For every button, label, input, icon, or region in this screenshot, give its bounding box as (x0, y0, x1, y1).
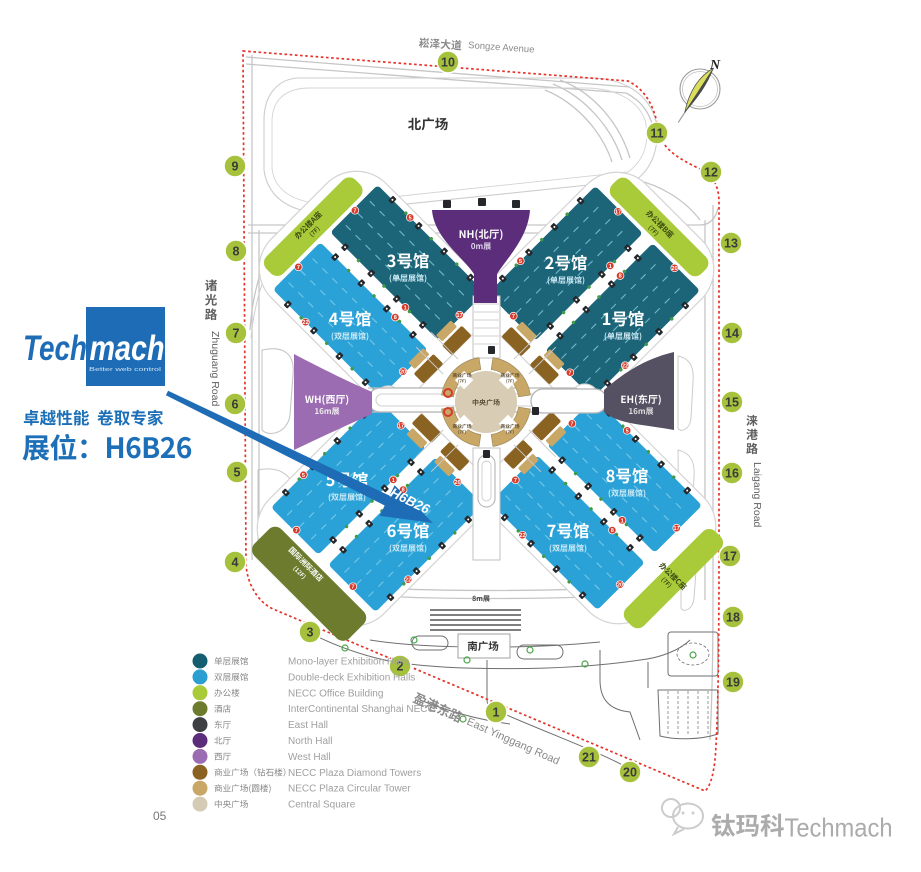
svg-text:1: 1 (392, 478, 395, 484)
svg-text:15: 15 (725, 395, 739, 409)
svg-text:8: 8 (233, 244, 240, 258)
svg-text:5: 5 (409, 215, 412, 221)
svg-text:20: 20 (672, 266, 678, 272)
svg-text:7: 7 (297, 265, 300, 271)
svg-text:20: 20 (400, 370, 406, 376)
svg-text:West Hall: West Hall (288, 752, 331, 763)
svg-text:10: 10 (441, 55, 455, 69)
svg-text:13: 13 (724, 236, 738, 250)
svg-text:Mono-layer Exhibition Halls: Mono-layer Exhibition Halls (288, 657, 409, 668)
svg-text:22: 22 (405, 578, 411, 584)
svg-text:7: 7 (295, 528, 298, 534)
svg-text:7: 7 (233, 326, 240, 340)
svg-text:18: 18 (726, 610, 740, 624)
svg-text:NECC Plaza Circular Tower: NECC Plaza Circular Tower (288, 784, 411, 795)
svg-text:8: 8 (611, 528, 614, 534)
svg-text:North Hall: North Hall (288, 736, 332, 747)
svg-text:N: N (709, 58, 721, 73)
svg-text:8: 8 (394, 315, 397, 321)
svg-text:7: 7 (353, 208, 356, 214)
svg-text:11: 11 (650, 126, 663, 140)
svg-text:20: 20 (455, 480, 461, 486)
svg-text:7: 7 (514, 478, 517, 484)
svg-text:1: 1 (404, 305, 407, 311)
svg-text:Double-deck Exhibition Halls: Double-deck Exhibition Halls (288, 672, 415, 683)
svg-text:1: 1 (609, 264, 612, 270)
svg-text:Tech: Tech (23, 329, 87, 368)
svg-text:Zhuguang Road: Zhuguang Road (209, 331, 221, 406)
svg-text:19: 19 (726, 675, 740, 689)
svg-text:7: 7 (570, 421, 573, 427)
svg-text:22: 22 (622, 364, 628, 370)
svg-text:4: 4 (232, 555, 239, 569)
svg-text:17: 17 (723, 549, 737, 563)
svg-text:East Hall: East Hall (288, 720, 328, 731)
svg-text:5: 5 (302, 473, 305, 479)
svg-text:20: 20 (623, 765, 637, 779)
svg-text:Better web control: Better web control (89, 367, 161, 373)
svg-text:9: 9 (232, 159, 239, 173)
svg-text:14: 14 (725, 326, 739, 340)
svg-text:7: 7 (512, 314, 515, 320)
svg-text:NECC Plaza Diamond Towers: NECC Plaza Diamond Towers (288, 768, 421, 779)
svg-text:5: 5 (626, 428, 629, 434)
svg-text:17: 17 (674, 526, 680, 532)
svg-text:20: 20 (617, 583, 623, 589)
svg-text:16: 16 (725, 466, 739, 480)
svg-text:5: 5 (519, 259, 522, 265)
svg-text:1: 1 (493, 705, 500, 719)
svg-text:Laigang Road: Laigang Road (751, 462, 763, 528)
svg-text:17: 17 (615, 209, 621, 215)
svg-text:21: 21 (582, 750, 596, 764)
svg-text:NECC Office Building: NECC Office Building (288, 688, 383, 699)
svg-text:22: 22 (302, 320, 308, 326)
svg-text:1: 1 (621, 518, 624, 524)
svg-text:12: 12 (704, 165, 718, 179)
svg-text:3: 3 (307, 625, 314, 639)
svg-text:7: 7 (351, 585, 354, 591)
svg-text:17: 17 (398, 423, 404, 429)
svg-text:05: 05 (153, 809, 167, 823)
svg-text:6: 6 (232, 397, 239, 411)
svg-text:5: 5 (234, 465, 241, 479)
svg-text:17: 17 (457, 313, 463, 319)
svg-text:8: 8 (619, 274, 622, 280)
svg-text:InterContinental Shanghai NECC: InterContinental Shanghai NECC (288, 704, 435, 715)
svg-text:22: 22 (519, 533, 525, 539)
svg-text:Central Square: Central Square (288, 800, 356, 811)
svg-text:7: 7 (568, 371, 571, 377)
svg-text:Techmach: Techmach (785, 813, 893, 843)
svg-text:mach: mach (90, 329, 165, 368)
